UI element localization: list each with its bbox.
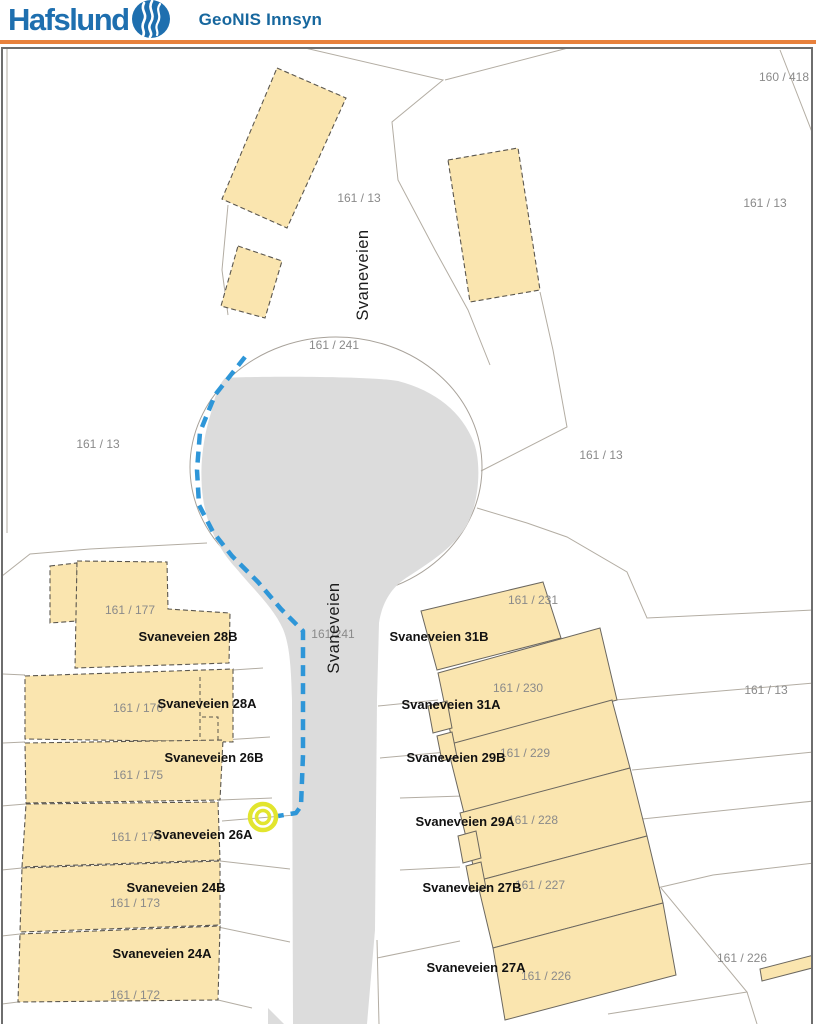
address-label: Svaneveien 27A [426, 960, 526, 975]
address-label: Svaneveien 24A [112, 946, 212, 961]
building-southeast-strip [760, 955, 811, 981]
street-label: Svaneveien [325, 582, 343, 673]
building-top-large [222, 68, 346, 228]
building-top-small [221, 246, 282, 318]
app-header: Hafslund GeoNIS Innsyn [0, 0, 816, 44]
parcel-label: 161 / 177 [105, 603, 155, 617]
page-title: GeoNIS Innsyn [199, 10, 323, 30]
address-label: Svaneveien 26B [164, 750, 263, 765]
address-label: Svaneveien 27B [422, 880, 521, 895]
address-label: Svaneveien 29A [415, 814, 515, 829]
map-container: 160 / 418 161 / 13 161 / 13 161 / 241 16… [1, 47, 813, 1024]
address-label: Svaneveien 26A [153, 827, 253, 842]
parcel-label: 161 / 230 [493, 681, 543, 695]
parcel-label: 161 / 172 [110, 988, 160, 1002]
address-label: Svaneveien 28A [157, 696, 257, 711]
address-label: Svaneveien 24B [126, 880, 225, 895]
parcel-label: 161 / 241 [309, 338, 359, 352]
map-canvas[interactable]: 160 / 418 161 / 13 161 / 13 161 / 241 16… [3, 49, 811, 1024]
parcel-label: 161 / 226 [717, 951, 767, 965]
parcel-label: 161 / 173 [110, 896, 160, 910]
parcel-label: 161 / 228 [508, 813, 558, 827]
parcel-label: 161 / 231 [508, 593, 558, 607]
address-label: Svaneveien 31A [401, 697, 501, 712]
parcel-label: 161 / 13 [744, 683, 788, 697]
parcel-label: 161 / 229 [500, 746, 550, 760]
parcel-label: 161 / 13 [337, 191, 381, 205]
address-label: Svaneveien 29B [406, 750, 505, 765]
parcel-label: 161 / 175 [113, 768, 163, 782]
parcel-label: 161 / 226 [521, 969, 571, 983]
parcel-label: 161 / 13 [579, 448, 623, 462]
building-top-right [448, 148, 540, 302]
address-label: Svaneveien 31B [389, 629, 488, 644]
hafslund-wave-logo-icon [131, 0, 171, 44]
parcel-label: 160 / 418 [759, 70, 809, 84]
parcel-label: 161 / 13 [76, 437, 120, 451]
parcel-label: 161 / 227 [515, 878, 565, 892]
parcel-label: 161 / 176 [113, 701, 163, 715]
brand-logo-text: Hafslund [8, 0, 129, 40]
driveway [268, 1008, 284, 1024]
address-label: Svaneveien 28B [138, 629, 237, 644]
street-label: Svaneveien [354, 229, 372, 320]
building-svaneveien-28b-step [50, 563, 77, 623]
parcel-label: 161 / 13 [743, 196, 787, 210]
